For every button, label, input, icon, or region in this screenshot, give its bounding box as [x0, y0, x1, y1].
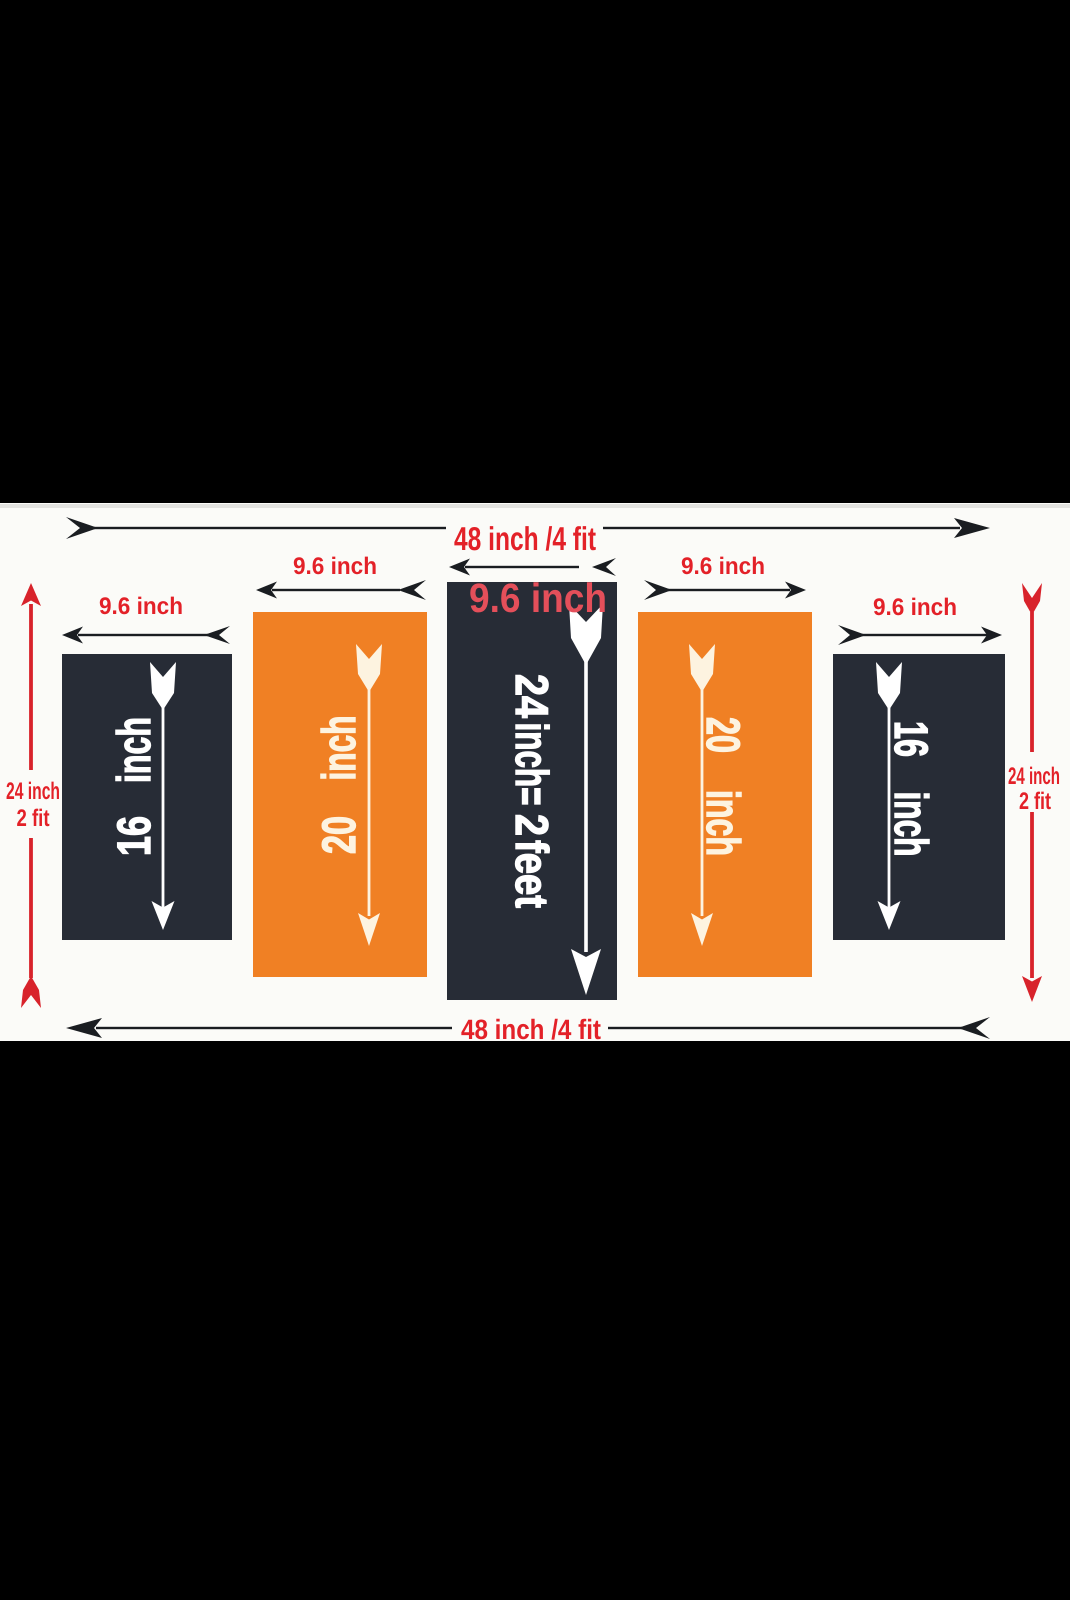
svg-text:24: 24: [506, 674, 558, 718]
svg-text:inch=: inch=: [506, 723, 558, 806]
svg-text:9.6 inch: 9.6 inch: [293, 553, 377, 580]
svg-text:feet: feet: [506, 840, 558, 908]
svg-text:16: 16: [885, 721, 938, 757]
svg-text:inch: inch: [697, 790, 750, 856]
svg-text:2 fit: 2 fit: [17, 805, 50, 832]
svg-text:2: 2: [506, 814, 558, 836]
svg-text:24 inch: 24 inch: [6, 778, 60, 805]
svg-text:9.6 inch: 9.6 inch: [873, 594, 957, 621]
svg-text:24 inch: 24 inch: [1008, 763, 1060, 790]
svg-text:inch: inch: [312, 716, 365, 781]
svg-text:48 inch /4 fit: 48 inch /4 fit: [461, 1014, 601, 1045]
svg-text:inch: inch: [107, 717, 160, 783]
svg-text:20: 20: [312, 816, 365, 854]
svg-text:20: 20: [697, 717, 750, 753]
svg-text:inch: inch: [885, 792, 938, 857]
svg-text:48 inch /4 fit: 48 inch /4 fit: [454, 520, 596, 557]
svg-text:2 fit: 2 fit: [1019, 788, 1051, 815]
svg-text:16: 16: [107, 816, 160, 856]
svg-text:9.6 inch: 9.6 inch: [469, 575, 607, 621]
svg-text:9.6 inch: 9.6 inch: [99, 593, 183, 620]
svg-text:9.6 inch: 9.6 inch: [681, 553, 765, 580]
